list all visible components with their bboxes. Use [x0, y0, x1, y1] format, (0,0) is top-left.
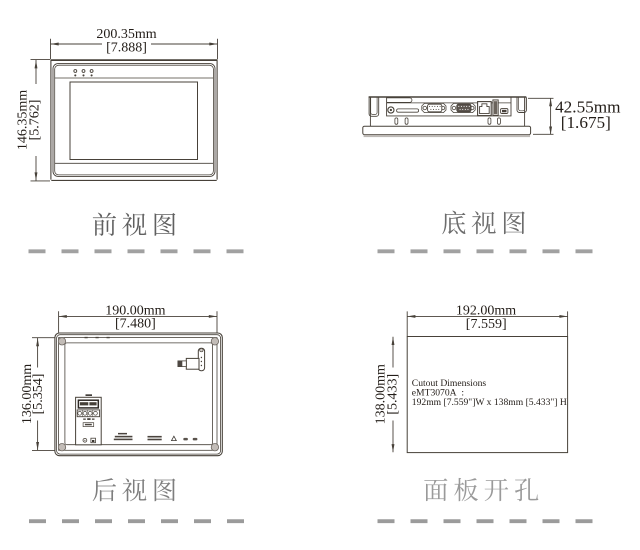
- svg-text:[1.675]: [1.675]: [561, 113, 611, 132]
- svg-text:[7.559]: [7.559]: [466, 317, 507, 332]
- svg-text:192mm [7.559"]W x 138mm [5.433: 192mm [7.559"]W x 138mm [5.433"] H: [412, 397, 567, 408]
- svg-text:[7.480]: [7.480]: [115, 317, 156, 332]
- svg-text:[7.888]: [7.888]: [106, 41, 147, 56]
- svg-text:[5.354]: [5.354]: [31, 374, 46, 415]
- svg-text:[5.433]: [5.433]: [386, 374, 401, 415]
- svg-text:[5.762]: [5.762]: [28, 100, 43, 141]
